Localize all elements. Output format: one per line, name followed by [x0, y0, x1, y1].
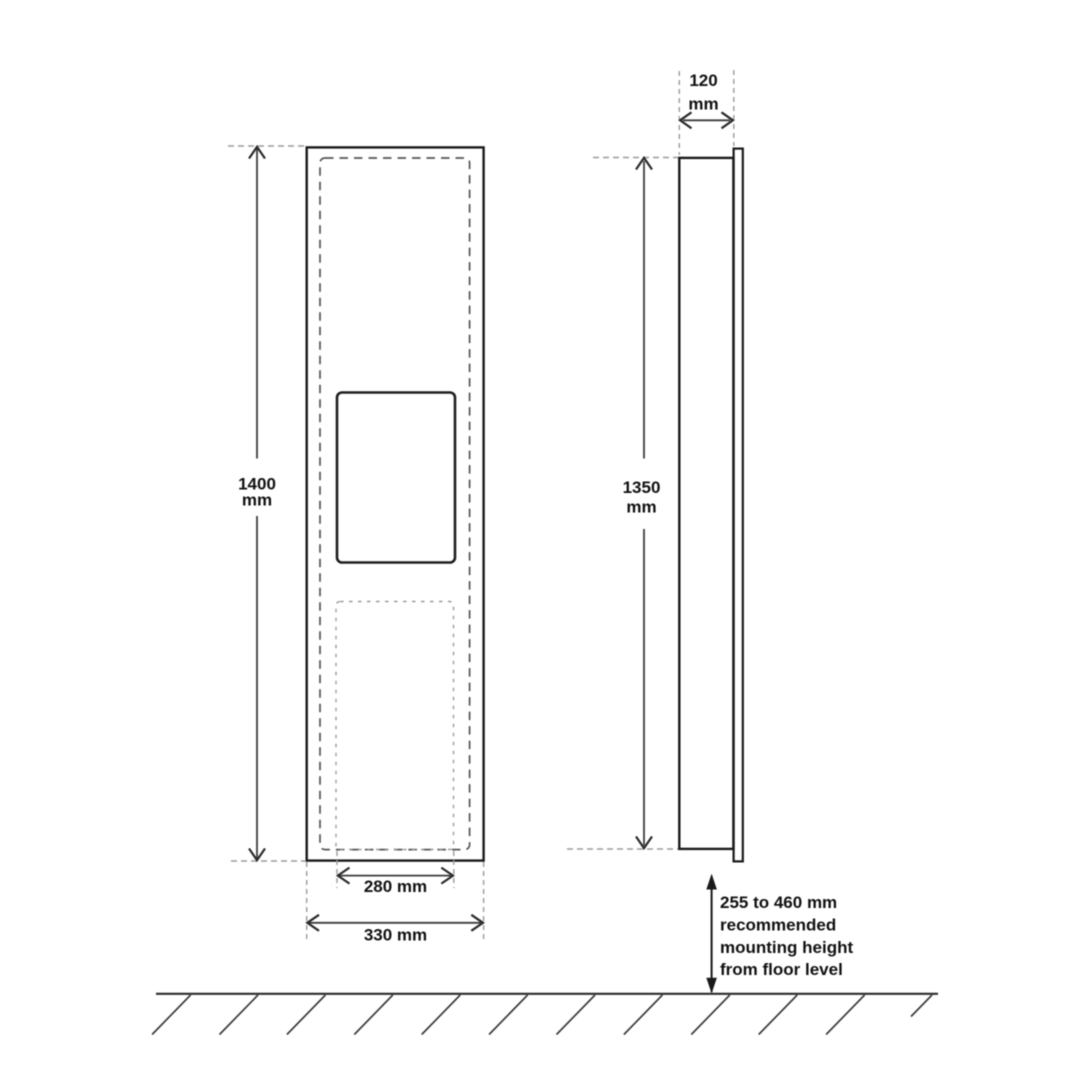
svg-text:from floor level: from floor level [720, 960, 843, 979]
svg-text:1350: 1350 [623, 478, 661, 497]
svg-text:280 mm: 280 mm [364, 877, 427, 896]
svg-text:mm: mm [242, 491, 272, 510]
svg-text:330 mm: 330 mm [364, 926, 427, 945]
svg-text:mounting height: mounting height [720, 938, 853, 957]
svg-text:mm: mm [626, 498, 656, 517]
svg-text:recommended: recommended [720, 915, 836, 934]
svg-text:120: 120 [689, 71, 717, 90]
svg-text:255 to 460 mm: 255 to 460 mm [720, 893, 837, 912]
svg-text:mm: mm [688, 95, 718, 114]
